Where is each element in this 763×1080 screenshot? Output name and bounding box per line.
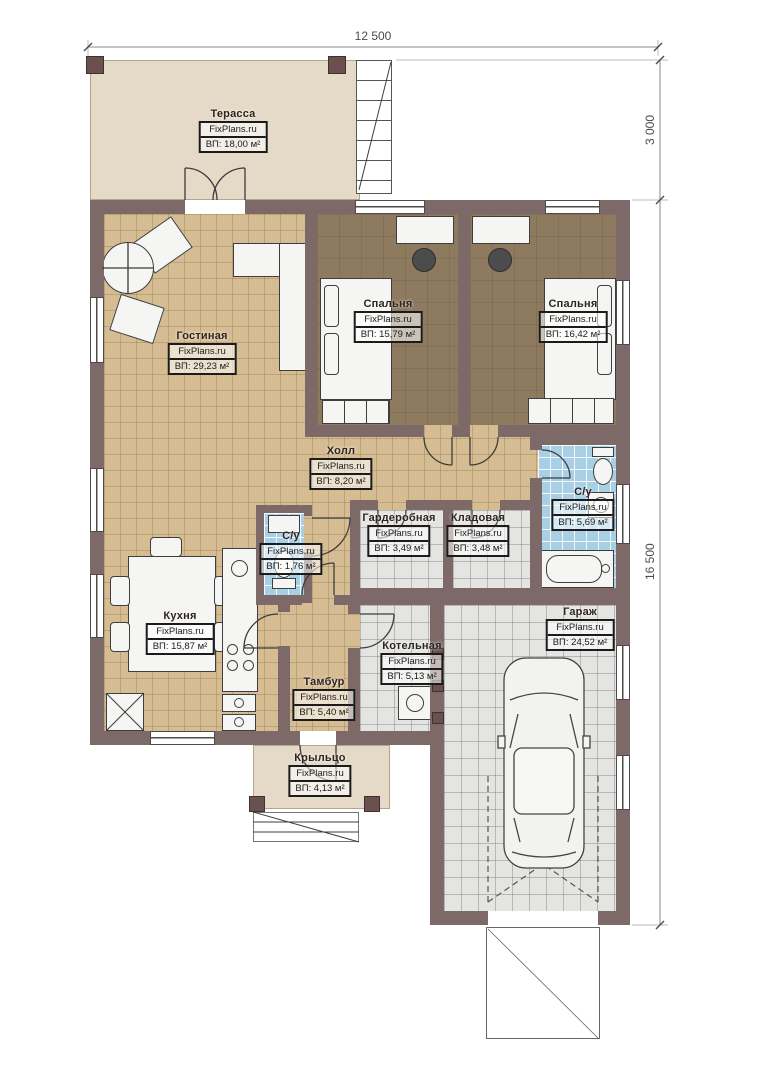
terrace-post: [328, 56, 346, 74]
stove-burner: [227, 644, 238, 655]
wall: [430, 911, 488, 925]
garage-door-leaf: [486, 927, 600, 1039]
wall: [500, 500, 530, 510]
brand-watermark: FixPlans.ru: [356, 313, 421, 328]
label-bedroom-2: Спальня FixPlans.ru ВП: 16,42 м²: [539, 298, 608, 343]
floor-plan: 12 500 3 000 16 500 Терасса FixPlans.ru …: [0, 0, 763, 1080]
stove-burner: [227, 660, 238, 671]
boiler-dial: [406, 694, 424, 712]
brand-watermark: FixPlans.ru: [294, 691, 353, 706]
pillow: [324, 285, 339, 327]
wall: [458, 214, 470, 437]
room-area: ВП: 29,23 м²: [170, 360, 235, 373]
room-area: ВП: 16,42 м²: [541, 328, 606, 341]
wardrobe-cabinet: [528, 398, 614, 424]
room-area: ВП: 5,40 м²: [294, 706, 353, 719]
brand-watermark: FixPlans.ru: [382, 655, 441, 670]
wall: [350, 500, 378, 510]
wall: [90, 731, 150, 745]
label-hall: Холл FixPlans.ru ВП: 8,20 м²: [309, 445, 372, 490]
label-kitchen: Кухня FixPlans.ru ВП: 15,87 м²: [146, 610, 215, 655]
window: [616, 755, 630, 810]
room-area: ВП: 5,13 м²: [382, 670, 441, 683]
office-chair: [412, 248, 436, 272]
bathtub-basin: [546, 555, 602, 583]
wall: [305, 425, 424, 437]
brand-watermark: FixPlans.ru: [261, 545, 320, 560]
toilet-tank: [592, 447, 614, 457]
label-garage: Гараж FixPlans.ru ВП: 24,52 м²: [546, 606, 615, 651]
chair: [110, 622, 130, 652]
wall: [215, 731, 300, 745]
dimension-width-label: 12 500: [288, 29, 458, 43]
porch-post: [249, 796, 265, 812]
wall: [304, 505, 312, 516]
window: [616, 484, 630, 544]
brand-watermark: FixPlans.ru: [290, 767, 349, 782]
wall: [245, 200, 355, 214]
room-area: ВП: 4,13 м²: [290, 782, 349, 795]
wall: [425, 200, 545, 214]
brand-watermark: FixPlans.ru: [311, 460, 370, 475]
stove-burner: [243, 644, 254, 655]
room-area: ВП: 3,49 м²: [369, 542, 428, 555]
stove-burner: [243, 660, 254, 671]
dimension-height-label: 16 500: [643, 512, 657, 612]
wall: [90, 363, 104, 468]
window: [545, 200, 600, 214]
label-bathroom-main: С/у FixPlans.ru ВП: 5,69 м²: [551, 486, 614, 531]
desk: [472, 216, 530, 244]
room-area: ВП: 3,48 м²: [448, 542, 507, 555]
terrace-post: [86, 56, 104, 74]
label-porch: Крыльцо FixPlans.ru ВП: 4,13 м²: [288, 752, 351, 797]
garage-gate-opening: [488, 911, 598, 925]
terrace-door-opening: [185, 200, 245, 214]
brand-watermark: FixPlans.ru: [448, 527, 507, 542]
radiator: [432, 712, 444, 724]
wall: [598, 911, 630, 925]
terrace-stairs: [356, 60, 392, 194]
entry-door-opening: [300, 731, 336, 745]
wall: [542, 437, 616, 445]
wall: [256, 595, 302, 605]
brand-watermark: FixPlans.ru: [148, 625, 213, 640]
toilet-tank: [272, 578, 296, 589]
window: [616, 280, 630, 345]
room-area: ВП: 15,79 м²: [356, 328, 421, 341]
room-area: ВП: 24,52 м²: [548, 636, 613, 649]
label-wardrobe: Гардеробная FixPlans.ru ВП: 3,49 м²: [362, 512, 435, 557]
room-area: ВП: 18,00 м²: [201, 138, 266, 151]
brand-watermark: FixPlans.ru: [553, 501, 612, 516]
wall: [278, 646, 290, 731]
office-chair: [488, 248, 512, 272]
wardrobe-cabinet: [322, 400, 390, 424]
wall: [616, 345, 630, 484]
wall: [406, 500, 472, 510]
label-boiler: Котельная FixPlans.ru ВП: 5,13 м²: [380, 640, 443, 685]
label-bedroom-1: Спальня FixPlans.ru ВП: 15,79 м²: [354, 298, 423, 343]
window: [150, 731, 215, 745]
toilet-bowl: [593, 458, 613, 485]
coffee-table: [102, 242, 154, 294]
window: [90, 468, 104, 532]
brand-watermark: FixPlans.ru: [541, 313, 606, 328]
wall: [90, 200, 185, 214]
room-area: ВП: 5,69 м²: [553, 516, 612, 529]
wall: [90, 200, 104, 297]
label-terrace: Терасса FixPlans.ru ВП: 18,00 м²: [199, 108, 268, 153]
wall: [452, 425, 470, 437]
bathtub-drain: [601, 564, 610, 573]
wall: [616, 810, 630, 925]
label-living: Гостиная FixPlans.ru ВП: 29,23 м²: [168, 330, 237, 375]
room-area: ВП: 15,87 м²: [148, 640, 213, 653]
window: [90, 574, 104, 638]
porch-post: [364, 796, 380, 812]
wall: [616, 700, 630, 755]
brand-watermark: FixPlans.ru: [170, 345, 235, 360]
window: [90, 297, 104, 363]
window: [355, 200, 425, 214]
appliance-knob: [234, 717, 244, 727]
brand-watermark: FixPlans.ru: [369, 527, 428, 542]
chair: [110, 576, 130, 606]
wall: [334, 595, 630, 605]
window: [616, 645, 630, 700]
wall: [616, 200, 630, 280]
porch-steps: [253, 812, 359, 842]
desk: [396, 216, 454, 244]
dimension-terrace-depth-label: 3 000: [643, 90, 657, 170]
wall: [278, 605, 290, 612]
wall: [430, 745, 444, 925]
label-bathroom-small: С/у FixPlans.ru ВП: 1,76 м²: [259, 530, 322, 575]
pillow: [324, 333, 339, 375]
wall: [530, 437, 542, 450]
room-area: ВП: 1,76 м²: [261, 560, 320, 573]
brand-watermark: FixPlans.ru: [201, 123, 266, 138]
wall: [530, 478, 542, 598]
brand-watermark: FixPlans.ru: [548, 621, 613, 636]
wall: [498, 425, 630, 437]
wall: [90, 532, 104, 574]
wall: [348, 605, 360, 614]
label-storage: Кладовая FixPlans.ru ВП: 3,48 м²: [446, 512, 509, 557]
label-tambour: Тамбур FixPlans.ru ВП: 5,40 м²: [292, 676, 355, 721]
wall: [305, 200, 317, 437]
floor-hatch: [106, 693, 144, 731]
sink: [231, 560, 248, 577]
chair: [150, 537, 182, 557]
room-area: ВП: 8,20 м²: [311, 475, 370, 488]
wall: [336, 731, 444, 745]
appliance-knob: [234, 698, 244, 708]
wall: [350, 510, 360, 598]
wall: [90, 638, 104, 745]
